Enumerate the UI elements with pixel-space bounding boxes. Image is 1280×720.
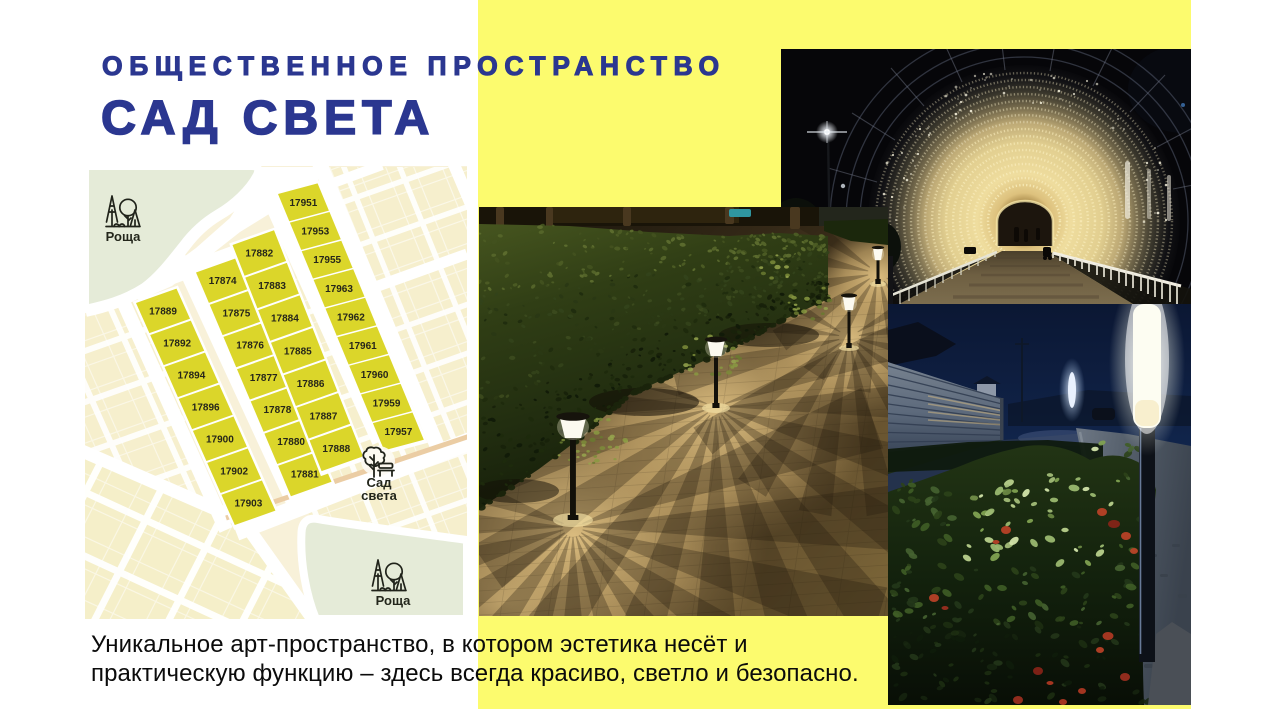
svg-text:17881: 17881: [291, 469, 319, 480]
svg-text:17960: 17960: [361, 370, 389, 381]
svg-text:17882: 17882: [245, 249, 273, 260]
svg-text:17903: 17903: [234, 498, 262, 509]
svg-text:17880: 17880: [277, 437, 305, 448]
svg-text:17878: 17878: [263, 405, 291, 416]
svg-text:17892: 17892: [163, 339, 191, 350]
svg-text:17961: 17961: [349, 341, 377, 352]
svg-text:17887: 17887: [309, 411, 337, 422]
svg-text:17874: 17874: [209, 276, 237, 287]
svg-text:света: света: [361, 488, 397, 503]
svg-text:17902: 17902: [220, 466, 248, 477]
svg-text:Роща: Роща: [106, 229, 141, 244]
svg-text:17900: 17900: [206, 434, 234, 445]
svg-text:17877: 17877: [250, 373, 278, 384]
svg-text:17957: 17957: [384, 427, 412, 438]
svg-text:17875: 17875: [222, 308, 250, 319]
svg-text:17886: 17886: [297, 379, 325, 390]
svg-text:17959: 17959: [373, 398, 401, 409]
svg-text:17896: 17896: [192, 402, 220, 413]
svg-text:17883: 17883: [258, 281, 286, 292]
svg-text:17963: 17963: [325, 284, 353, 295]
svg-text:17885: 17885: [284, 346, 312, 357]
svg-text:17888: 17888: [322, 444, 350, 455]
svg-text:17955: 17955: [313, 255, 341, 266]
svg-text:Роща: Роща: [376, 593, 411, 608]
svg-text:17951: 17951: [289, 198, 317, 209]
svg-text:17953: 17953: [301, 227, 329, 238]
svg-text:17889: 17889: [149, 307, 177, 318]
svg-text:17876: 17876: [236, 341, 264, 352]
svg-text:17962: 17962: [337, 313, 365, 324]
svg-text:17884: 17884: [271, 314, 299, 325]
svg-text:17894: 17894: [177, 370, 205, 381]
